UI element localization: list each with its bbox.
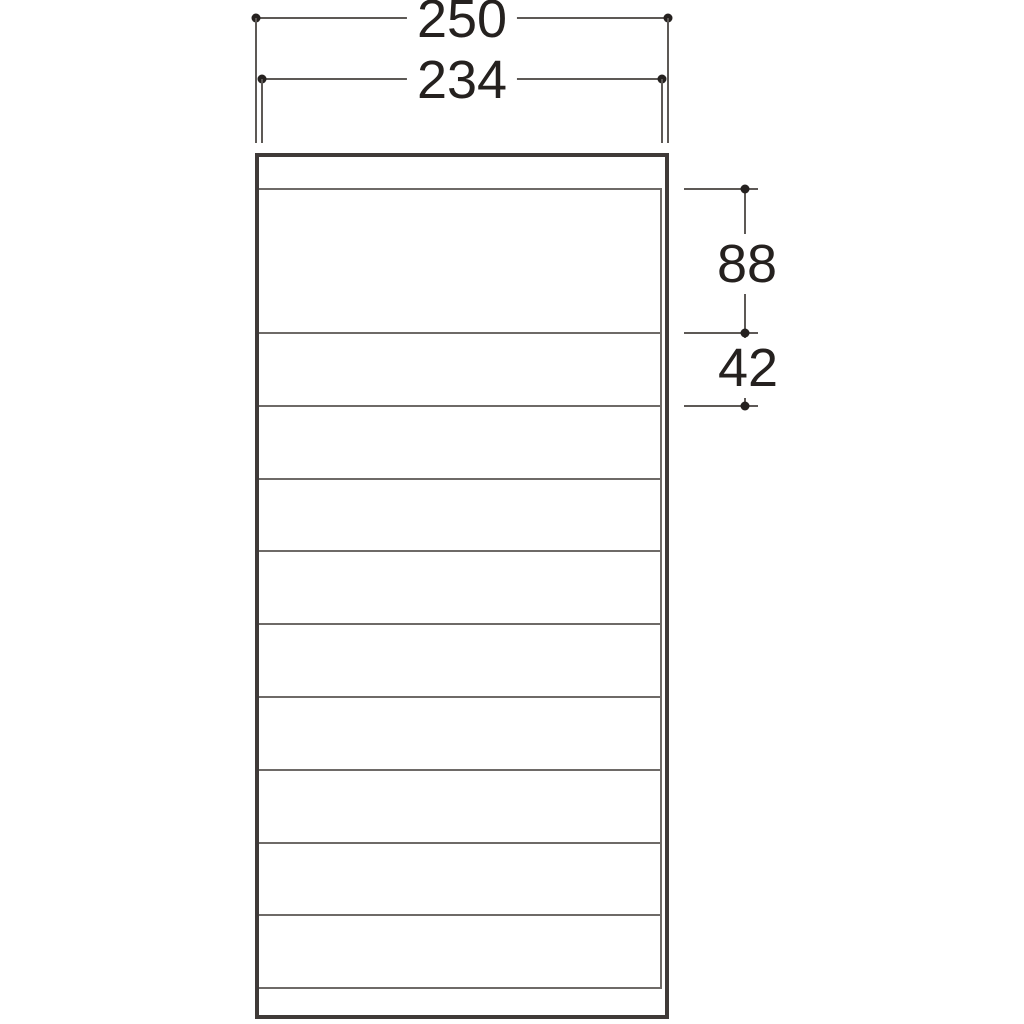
- shelf-divider-line: [259, 405, 661, 407]
- cabinet-outline: [255, 153, 669, 1019]
- dimension-endpoint-dot: [741, 185, 750, 194]
- shelf-divider-line: [259, 696, 661, 698]
- dimension-label-inner-width: 234: [407, 53, 517, 107]
- shelf-divider-line: [259, 987, 661, 989]
- shelf-divider-line: [259, 332, 661, 334]
- dimension-endpoint-dot: [741, 329, 750, 338]
- dimension-endpoint-dot: [741, 402, 750, 411]
- shelf-divider-line: [259, 478, 661, 480]
- extension-line-right-outer: [667, 18, 669, 143]
- dimension-diagram: 250 234 88 42: [0, 0, 1024, 1024]
- shelf-divider-line: [259, 550, 661, 552]
- cabinet-right-inner-edge-line: [660, 188, 662, 989]
- shelf-divider-line: [259, 188, 661, 190]
- shelf-divider-line: [259, 914, 661, 916]
- dimension-label-shelf-spacing: 42: [714, 338, 782, 398]
- dimension-label-outer-width: 250: [407, 0, 517, 46]
- extension-line-left-outer: [255, 18, 257, 143]
- shelf-divider-line: [259, 769, 661, 771]
- shelf-divider-line: [259, 623, 661, 625]
- shelf-divider-line: [259, 842, 661, 844]
- extension-line-right-inner: [661, 79, 663, 143]
- dimension-label-top-compartment-height: 88: [713, 234, 781, 294]
- extension-line-left-inner: [261, 79, 263, 143]
